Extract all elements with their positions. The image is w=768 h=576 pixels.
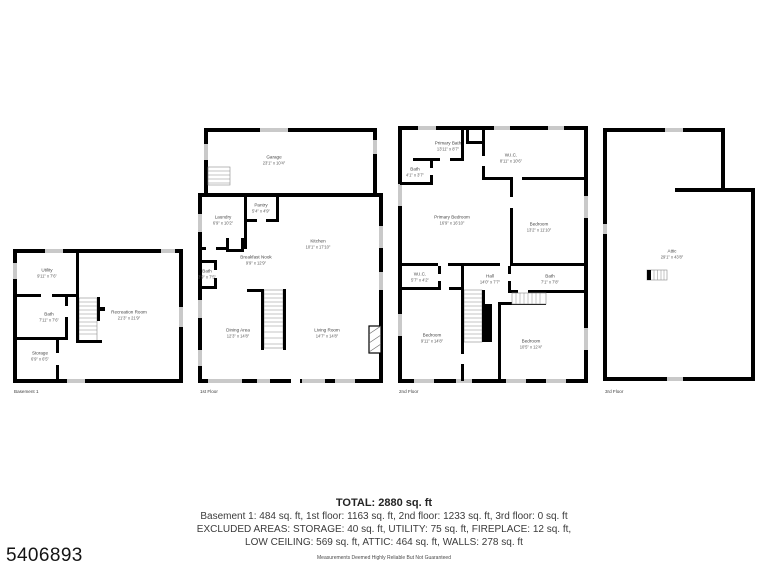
room-dims: 9'11" x 7'6" — [37, 273, 57, 278]
room-name: Bedroom — [520, 339, 542, 345]
room-dims: 29'1" x 43'8" — [661, 254, 683, 259]
caption-basement: Basement 1 — [14, 389, 39, 394]
room-dims: 7'11" x 7'6" — [39, 317, 59, 322]
room-dims: 6'9" x 10'2" — [213, 220, 233, 225]
room-dims: 12'3" x 14'8" — [226, 333, 250, 338]
room-dims: 10'5" x 12'4" — [520, 344, 542, 349]
fireplace — [369, 326, 381, 353]
room-dims: 5'4" x 4'9" — [252, 208, 270, 213]
room-name: Pantry — [252, 203, 270, 209]
living-room-label: Living Room 14'7" x 14'8" — [314, 328, 340, 339]
primary-bath-label: Primary Bath 13'11" x 8'7" — [435, 141, 462, 152]
first-floor-walls-drawing — [198, 126, 383, 383]
room-name: Laundry — [213, 215, 233, 221]
first-floor-plan: Garage 23'1" x 10'4" Pantry 5'4" x 4'9" … — [198, 126, 383, 383]
bedroom-right-label: Bedroom 13'2" x 11'10" — [527, 222, 551, 233]
total-area-text: TOTAL: 2880 sq. ft — [0, 496, 768, 510]
caption-third-floor: 3rd Floor — [605, 389, 623, 394]
third-floor-plan: Attic 29'1" x 43'8" — [603, 128, 757, 381]
room-dims: 5'7" x 4'2" — [411, 277, 429, 282]
room-dims: 14'7" x 14'8" — [314, 333, 340, 338]
second-floor-closet — [512, 293, 546, 304]
room-dims: 23'1" x 10'4" — [263, 160, 285, 165]
room-name: Living Room — [314, 328, 340, 334]
room-dims: 14'0" x 7'7" — [480, 279, 500, 284]
pantry-label: Pantry 5'4" x 4'9" — [252, 203, 270, 214]
room-dims: 8'11" x 10'6" — [500, 158, 522, 163]
wic-top-label: W.I.C. 8'11" x 10'6" — [500, 153, 522, 164]
floorplan-sheet: Utility 9'11" x 7'6" Bath 7'11" x 7'6" R… — [0, 0, 768, 576]
primary-bedroom-label: Primary Bedroom 16'9" x 16'10" — [434, 215, 470, 226]
second-floor-plan: Primary Bath 13'11" x 8'7" Bath 4'1" x 3… — [398, 126, 588, 383]
excluded-areas-text-2: LOW CEILING: 569 sq. ft, ATTIC: 464 sq. … — [0, 536, 768, 549]
room-dims: 13'2" x 11'10" — [527, 227, 551, 232]
laundry-label: Laundry 6'9" x 10'2" — [213, 215, 233, 226]
room-dims: 21'3" x 21'9" — [111, 315, 147, 320]
kitchen-label: Kitchen 10'1" x 17'10" — [306, 239, 331, 250]
breakfast-nook-label: Breakfast Nook 9'9" x 12'9" — [240, 255, 271, 266]
second-bath-small-label: Bath 4'1" x 3'7" — [406, 167, 424, 178]
attic-stairs — [647, 270, 667, 280]
room-dims: 4'1" x 3'7" — [406, 172, 424, 177]
room-name: Primary Bedroom — [434, 215, 470, 221]
disclaimer-text: Measurements Deemed Highly Reliable But … — [0, 555, 768, 562]
excluded-areas-text-1: EXCLUDED AREAS: STORAGE: 40 sq. ft, UTIL… — [0, 523, 768, 536]
first-floor-stairs — [261, 289, 286, 350]
second-floor-walls-drawing — [398, 126, 588, 383]
area-summary-block: TOTAL: 2880 sq. ft Basement 1: 484 sq. f… — [0, 496, 768, 562]
room-dims: 9'9" x 12'9" — [240, 260, 271, 265]
caption-second-floor: 2nd Floor — [399, 389, 418, 394]
room-name: Bedroom — [527, 222, 551, 228]
garage-stairs — [208, 167, 230, 185]
basement-bath-label: Bath 7'11" x 7'6" — [39, 312, 59, 323]
bedroom-bottom-right-label: Bedroom 10'5" x 12'4" — [520, 339, 542, 350]
room-dims: 9'11" x 14'8" — [421, 338, 443, 343]
attic-label: Attic 29'1" x 43'8" — [661, 249, 683, 260]
room-name: Storage — [31, 351, 49, 357]
room-name: Breakfast Nook — [240, 255, 271, 261]
basement-stairs — [76, 297, 105, 343]
garage-label: Garage 23'1" x 10'4" — [263, 155, 285, 166]
basement-storage-label: Storage 6'9" x 6'5" — [31, 351, 49, 362]
second-floor-interior-walls — [400, 130, 586, 381]
basement-utility-label: Utility 9'11" x 7'6" — [37, 268, 57, 279]
basement-recreation-label: Recreation Room 21'3" x 21'9" — [111, 310, 147, 321]
second-bath-label: Bath 7'1" x 7'8" — [541, 274, 559, 285]
room-name: Bedroom — [421, 333, 443, 339]
bedroom-bottom-left-label: Bedroom 9'11" x 14'8" — [421, 333, 443, 344]
wic-small-label: W.I.C. 5'7" x 4'2" — [411, 272, 429, 283]
caption-first-floor: 1st Floor — [200, 389, 218, 394]
room-dims: 6'9" x 6'5" — [31, 356, 49, 361]
room-name: Dining Area — [226, 328, 250, 334]
room-name: Recreation Room — [111, 310, 147, 316]
room-dims: 13'11" x 8'7" — [435, 146, 462, 151]
hall-label: Hall 14'0" x 7'7" — [480, 274, 500, 285]
room-dims: 3'9" x 7'5" — [198, 274, 216, 279]
listing-id-number: 5406893 — [6, 545, 83, 567]
first-bath-label: Bath 3'9" x 7'5" — [198, 269, 216, 280]
basement-floorplan: Utility 9'11" x 7'6" Bath 7'11" x 7'6" R… — [13, 249, 183, 383]
room-dims: 10'1" x 17'10" — [306, 244, 331, 249]
room-dims: 16'9" x 16'10" — [434, 220, 470, 225]
floor-areas-text: Basement 1: 484 sq. ft, 1st floor: 1163 … — [0, 510, 768, 523]
dining-area-label: Dining Area 12'3" x 14'8" — [226, 328, 250, 339]
room-dims: 7'1" x 7'8" — [541, 279, 559, 284]
room-name: Primary Bath — [435, 141, 462, 147]
